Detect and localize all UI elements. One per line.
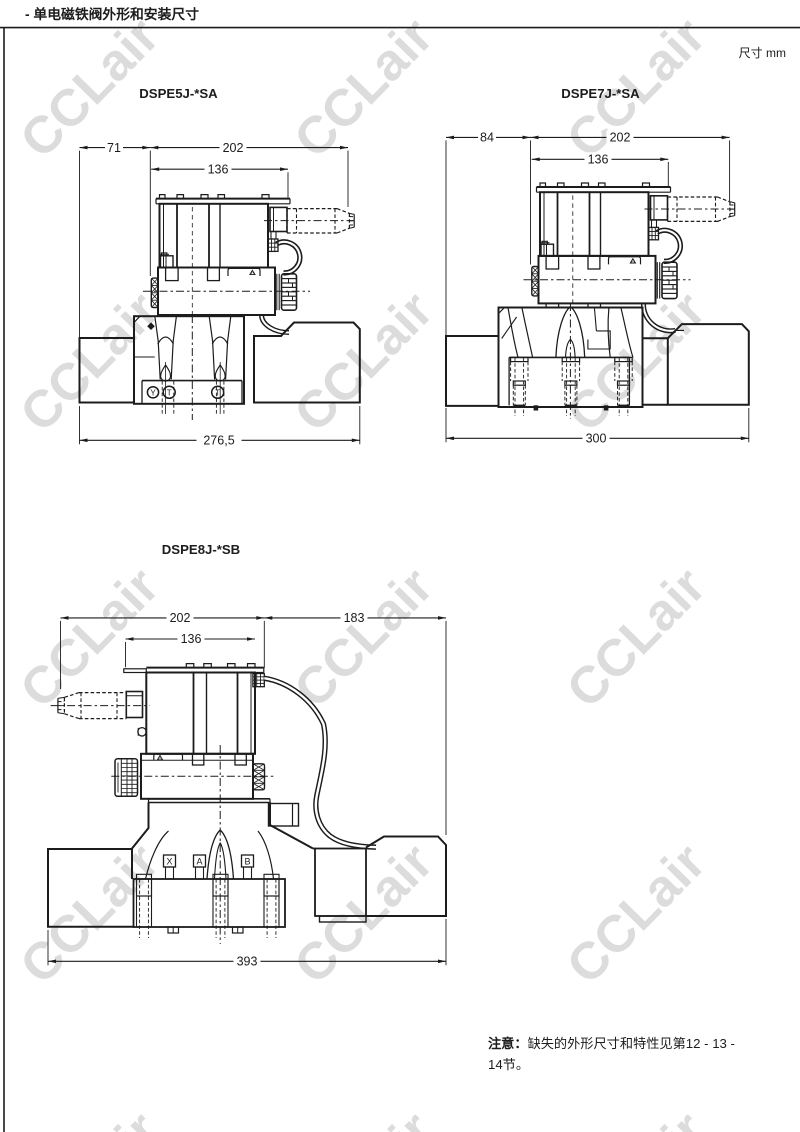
svg-text:T: T	[167, 388, 172, 397]
svg-text:136: 136	[588, 153, 609, 167]
svg-text:CCLair: CCLair	[283, 557, 444, 719]
svg-text:DSPE7J-*SA: DSPE7J-*SA	[561, 86, 640, 101]
svg-text:CCLair: CCLair	[9, 281, 170, 443]
svg-text:300: 300	[586, 432, 607, 446]
svg-text:B: B	[244, 856, 250, 866]
svg-text:71: 71	[107, 141, 121, 155]
svg-text:CCLair: CCLair	[283, 1101, 444, 1132]
svg-text:CCLair: CCLair	[556, 1101, 717, 1132]
svg-text:CCLair: CCLair	[283, 7, 444, 169]
svg-text:A: A	[196, 856, 202, 866]
svg-text:X: X	[166, 856, 172, 866]
svg-text:202: 202	[170, 611, 191, 625]
svg-text:393: 393	[237, 955, 258, 969]
svg-text:Y: Y	[150, 388, 156, 397]
svg-text:CCLair: CCLair	[9, 1101, 170, 1132]
svg-text:183: 183	[344, 611, 365, 625]
svg-text:CCLair: CCLair	[283, 281, 444, 443]
svg-text:CCLair: CCLair	[556, 557, 717, 719]
svg-text:DSPE5J-*SA: DSPE5J-*SA	[139, 86, 218, 101]
svg-text:DSPE8J-*SB: DSPE8J-*SB	[162, 542, 240, 557]
svg-text:136: 136	[208, 162, 229, 176]
svg-text:276,5: 276,5	[203, 434, 234, 448]
svg-text:CCLair: CCLair	[556, 833, 717, 995]
svg-text:202: 202	[223, 141, 244, 155]
svg-text:84: 84	[480, 131, 494, 145]
svg-text:136: 136	[181, 632, 202, 646]
svg-text:尺寸 mm: 尺寸 mm	[739, 46, 786, 60]
svg-text:CCLair: CCLair	[283, 833, 444, 995]
svg-text:CCLair: CCLair	[9, 833, 170, 995]
svg-text:202: 202	[610, 131, 631, 145]
svg-text:- 单电磁铁阀外形和安装尺寸: - 单电磁铁阀外形和安装尺寸	[25, 6, 199, 22]
